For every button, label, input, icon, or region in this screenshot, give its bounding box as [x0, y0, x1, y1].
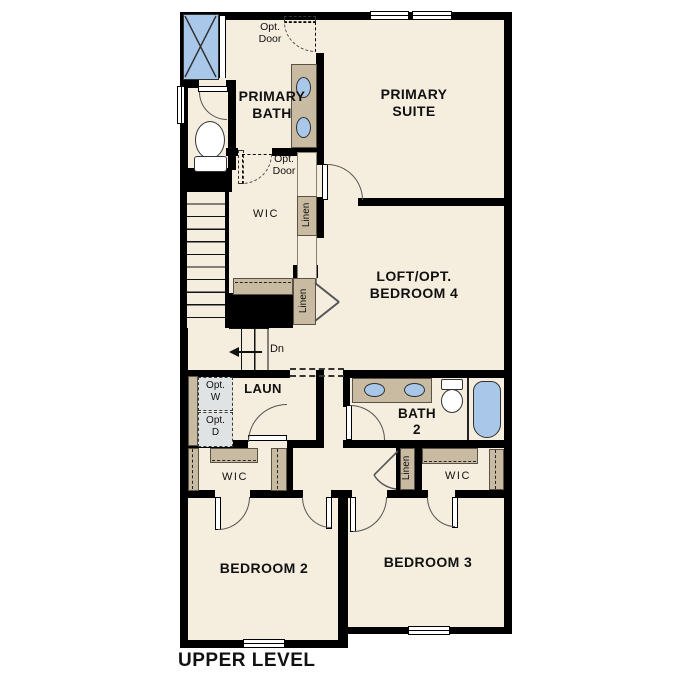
wic-primary-shelf	[233, 278, 293, 295]
wall-bath2-west	[343, 370, 350, 407]
label-opt-door-top: Opt. Door	[250, 21, 290, 46]
exterior-cutout	[348, 634, 512, 648]
window-bedroom3	[408, 626, 450, 635]
wic3-cabinet-right	[489, 449, 504, 490]
window-bedroom2	[243, 639, 285, 648]
toilet-icon-primary-bowl	[195, 121, 225, 159]
stair-opening-railing	[290, 368, 344, 377]
window-primary-bath	[177, 86, 185, 124]
label-loft: LOFT/OPT. BEDROOM 4	[354, 268, 474, 301]
tub-alcove-wall	[467, 378, 469, 440]
linen-loft-door	[314, 280, 342, 324]
wall-laundry-east	[316, 370, 324, 448]
wall-bedrooms-north-b	[250, 490, 303, 498]
shower-icon	[183, 14, 219, 80]
wall-laundry-south-east	[287, 440, 316, 448]
label-linen-loft: Linen	[298, 276, 310, 326]
wall-bedrooms-north-e	[455, 490, 512, 498]
wall-bath2-north	[343, 370, 504, 378]
stairs-down-arrow-line	[238, 351, 262, 353]
wic2-cabinet-right-dash	[277, 449, 278, 489]
stairs-upper-run	[187, 192, 225, 328]
wall-block-stair-turn	[229, 293, 293, 328]
page-title: UPPER LEVEL	[178, 650, 378, 672]
wic2-shelf-dash	[212, 460, 256, 461]
wic2-cabinet-right	[271, 448, 287, 491]
label-wic-bedroom3: WIC	[428, 470, 488, 483]
label-primary-bath: PRIMARY BATH	[222, 88, 322, 121]
floor-plan: PRIMARY BATH PRIMARY SUITE LOFT/OPT. BED…	[0, 0, 687, 687]
laundry-cabinet	[188, 376, 198, 446]
wic3-cabinet-right-dash	[495, 450, 496, 489]
label-linen-bed3: Linen	[401, 443, 413, 493]
wall-bedroom-divider	[338, 490, 348, 648]
shower-glass-panel	[219, 16, 226, 78]
label-opt-washer: Opt. W	[199, 380, 232, 404]
wall-suite-south	[358, 198, 504, 206]
wall-wic2-east	[287, 448, 293, 490]
label-bedroom2: BEDROOM 2	[194, 560, 334, 577]
window-suite-1	[370, 11, 409, 20]
wall-bath-south-west	[226, 148, 238, 156]
label-opt-dryer: Opt. D	[199, 415, 232, 439]
label-wic-primary: WIC	[236, 208, 296, 221]
wic2-cabinet-left-dash	[192, 449, 193, 489]
toilet-icon-primary-tank	[194, 156, 227, 172]
label-linen-hall-upper: Linen	[301, 190, 313, 240]
wall-linen3-east	[415, 448, 422, 490]
wic2-cabinet-left	[188, 448, 199, 491]
label-primary-suite: PRIMARY SUITE	[364, 86, 464, 119]
wall-bedrooms-north-a	[180, 490, 215, 498]
linen-bed3-door	[370, 448, 400, 492]
wall-right	[504, 12, 512, 634]
sink-icon-bath2-2	[404, 383, 425, 397]
label-dn: Dn	[264, 343, 290, 356]
wic3-shelf-dash	[424, 461, 476, 462]
wall-top	[180, 12, 512, 20]
wic-primary-shelf-dash	[235, 282, 291, 283]
wall-bath2-south	[343, 440, 504, 448]
wall-suite-west-lower	[316, 197, 324, 238]
window-suite-2	[412, 11, 452, 20]
bathtub-icon	[473, 381, 501, 438]
label-opt-door-wic: Opt. Door	[264, 153, 304, 178]
label-bath2: BATH 2	[387, 406, 447, 438]
shower-x-glyph	[184, 15, 217, 78]
stairs-down-arrow-head	[229, 347, 239, 357]
label-bedroom3: BEDROOM 3	[358, 554, 498, 571]
label-wic-bedroom2: WIC	[205, 471, 265, 484]
sink-icon-bath2-1	[364, 383, 385, 397]
label-laundry: LAUN	[233, 381, 293, 396]
